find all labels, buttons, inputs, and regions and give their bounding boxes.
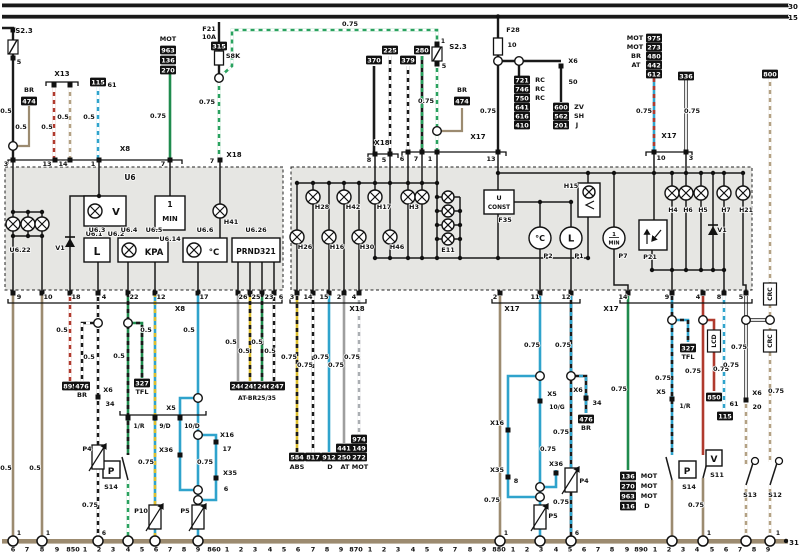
label: 14	[58, 160, 68, 168]
label: 0.5	[83, 113, 95, 121]
dot	[784, 539, 788, 543]
label: X17	[470, 133, 485, 141]
label: X36	[549, 460, 564, 468]
dot	[11, 210, 15, 214]
track-number: 7	[311, 546, 316, 554]
label: 9	[665, 293, 670, 301]
label: ZV	[574, 103, 584, 111]
dot	[311, 181, 315, 185]
pin-icon	[744, 291, 749, 296]
label: X8	[120, 145, 130, 153]
wire	[770, 463, 777, 485]
label: U6.3	[89, 226, 106, 234]
dot	[406, 256, 410, 260]
ground-junction-icon	[765, 536, 775, 546]
pin-icon	[670, 291, 675, 296]
label: 0.75	[553, 428, 570, 436]
wire	[441, 108, 462, 131]
wire	[180, 398, 198, 490]
wire-tag-number: 136	[621, 472, 635, 480]
label: H3	[409, 203, 419, 211]
label: 0.75	[328, 361, 345, 369]
label: 61	[107, 81, 117, 89]
track-number: 7	[25, 546, 30, 554]
wire-tag-number: 562	[554, 112, 568, 120]
label: 26	[238, 293, 248, 301]
label: H17	[377, 203, 392, 211]
label: 11	[530, 293, 540, 301]
track-number: 1	[225, 546, 230, 554]
label: P	[684, 467, 691, 477]
track-number: 8	[610, 546, 615, 554]
track-number: 1	[83, 546, 88, 554]
label: 9/D	[159, 423, 170, 430]
label: 10A	[202, 33, 216, 41]
label: MOT	[160, 35, 177, 43]
ground-junction-icon	[37, 536, 47, 546]
ground-junction-icon	[123, 536, 133, 546]
label: 0.5	[57, 113, 69, 121]
label: 10/D	[184, 423, 200, 430]
dot	[458, 223, 462, 227]
pin-icon	[178, 416, 183, 421]
label: H16	[330, 243, 345, 251]
label: 7	[161, 160, 166, 168]
wire-tag-number: 149	[352, 444, 366, 452]
label: TFL	[681, 353, 694, 361]
junction-icon	[668, 316, 677, 325]
wire-tag-number: 721	[515, 76, 529, 84]
label: H30	[360, 243, 375, 251]
track-number: 4	[411, 546, 416, 554]
label: U6	[124, 173, 135, 182]
wire	[122, 457, 128, 480]
dot	[327, 181, 331, 185]
wire-stripe	[222, 30, 437, 75]
track-number: 1	[653, 546, 658, 554]
pin-icon	[435, 150, 440, 155]
label: H7	[721, 207, 730, 214]
wire-tag-number: 476	[579, 415, 593, 423]
junction-icon	[215, 74, 224, 83]
connector-bracket	[120, 411, 206, 415]
wire-tag-number: 270	[161, 66, 175, 74]
svg-text:MIN: MIN	[608, 241, 619, 247]
track-number: 860	[207, 546, 221, 554]
wire-tag-number: 250	[337, 453, 351, 461]
track-number: 7	[168, 546, 173, 554]
wire-tag-number: 974	[352, 435, 366, 443]
label: P1	[574, 252, 584, 260]
track-number: 7	[596, 546, 601, 554]
label: X17	[504, 305, 519, 313]
label: 8	[514, 477, 519, 485]
wire-tag-number: 612	[647, 70, 661, 78]
label: 1	[441, 38, 445, 45]
label: 0.75	[344, 353, 361, 361]
dot	[388, 256, 392, 260]
label: U6.5	[146, 226, 163, 234]
track-number: 7	[738, 546, 743, 554]
ground-junction-icon	[566, 536, 576, 546]
label: 6	[400, 155, 405, 163]
rail	[2, 15, 790, 19]
label: V1	[55, 244, 65, 252]
label: 0.75	[655, 374, 672, 382]
label: 50	[568, 78, 578, 86]
pin-icon	[218, 158, 223, 163]
dot	[40, 210, 44, 214]
wire-tag-number: 442	[647, 61, 661, 69]
lcd-label: LCD	[711, 334, 718, 347]
wire-tag-number: 584	[290, 453, 304, 461]
pin-icon	[96, 395, 101, 400]
dot	[458, 256, 462, 260]
label: P	[108, 467, 115, 477]
label: 0.5	[41, 123, 53, 131]
dot	[97, 194, 101, 198]
label: BR	[24, 86, 34, 94]
crc-label: CRC	[767, 334, 774, 348]
label: F21	[202, 25, 216, 33]
label: 0.5	[264, 347, 276, 355]
rail	[2, 4, 790, 8]
dot	[722, 268, 726, 272]
dot	[295, 181, 299, 185]
track-number: 6	[439, 546, 444, 554]
label: 8	[717, 293, 722, 301]
label: V	[711, 455, 718, 465]
label: 1	[91, 160, 96, 168]
label: X16	[490, 419, 505, 427]
label: U	[496, 194, 501, 202]
label: KPA	[145, 248, 164, 258]
label: H41	[224, 218, 239, 226]
wire-tag-number: 800	[763, 70, 777, 78]
track-number: 1	[511, 546, 516, 554]
track-number: 3	[111, 546, 116, 554]
junction-icon	[494, 57, 503, 66]
label: S2.3	[15, 27, 33, 35]
wire-tag-number: 370	[367, 56, 381, 64]
pin-icon	[153, 416, 158, 421]
junction-icon	[194, 431, 203, 440]
dot	[435, 256, 439, 260]
label: 4	[352, 293, 357, 301]
junction-icon	[433, 127, 442, 136]
label: 0.75	[138, 458, 155, 466]
label: P7	[618, 252, 627, 260]
pin-icon	[97, 158, 102, 163]
label: X5	[166, 404, 176, 412]
label: BR	[457, 86, 467, 94]
label: RC	[535, 85, 545, 93]
junction-icon	[699, 316, 708, 325]
label: V	[112, 207, 120, 218]
label: 0.75	[197, 458, 214, 466]
wire-tag-number: 476	[75, 382, 89, 390]
track-number: 1	[368, 546, 373, 554]
label: 61	[729, 400, 739, 408]
label: 1	[46, 530, 50, 537]
label: 14	[618, 293, 628, 301]
track-number: 880	[492, 546, 506, 554]
dot	[652, 171, 656, 175]
label: X13	[54, 70, 69, 78]
label: 0.75	[684, 107, 701, 115]
track-number: 9	[55, 546, 60, 554]
dot	[435, 195, 439, 199]
label: MOT	[627, 43, 644, 51]
dot	[458, 237, 462, 241]
pin-icon	[538, 399, 543, 404]
label: E11	[441, 246, 455, 254]
label: U6.22	[9, 246, 30, 254]
label: 6	[102, 530, 106, 537]
label: 6	[224, 485, 229, 493]
label: 1	[17, 530, 21, 537]
label: MOT	[352, 463, 369, 471]
track-number: 850	[66, 546, 80, 554]
track-number: 2	[97, 546, 102, 554]
track-number: 4	[126, 546, 131, 554]
label: 0.75	[480, 107, 497, 115]
label: 0.5	[0, 107, 12, 115]
junction-icon	[194, 486, 203, 495]
dot	[11, 234, 15, 238]
track-number: 6	[11, 546, 16, 554]
label: 0.5	[183, 326, 195, 334]
label: S11	[710, 471, 724, 479]
label: S13	[743, 491, 757, 499]
pin-icon	[214, 440, 219, 445]
label: X8	[175, 305, 185, 313]
dot	[699, 171, 703, 175]
ground-junction-icon	[741, 536, 751, 546]
label: P4	[82, 445, 92, 453]
label: MOT	[641, 472, 658, 480]
label: S8K	[226, 52, 241, 60]
label: 0.75	[82, 501, 99, 509]
label: 22	[129, 293, 138, 301]
pin-icon	[373, 152, 378, 157]
wire-tag-number: 115	[91, 78, 105, 86]
label: X16	[220, 431, 235, 439]
wire-stripe	[571, 376, 586, 413]
label: 13	[486, 155, 495, 163]
label: 14	[303, 293, 313, 301]
label: MOT	[641, 492, 658, 500]
track-number: 5	[140, 546, 145, 554]
fuse-icon	[215, 51, 224, 65]
label: 0.75	[313, 353, 330, 361]
junction-icon	[194, 496, 203, 505]
label: 0.75	[723, 361, 740, 369]
pin-icon	[388, 152, 393, 157]
wire-tag-number: 136	[161, 56, 175, 64]
dot	[670, 268, 674, 272]
label: CONST	[488, 205, 510, 211]
pin-icon	[168, 158, 173, 163]
pin-icon	[420, 150, 425, 155]
track-number: 6	[582, 546, 587, 554]
ground-junction-icon	[8, 536, 18, 546]
ground-junction-icon	[667, 536, 677, 546]
label: 0.75	[685, 367, 702, 375]
fuse-icon	[494, 38, 503, 55]
dot	[496, 256, 500, 260]
wire-tag-number: 975	[647, 34, 661, 42]
label: 3	[290, 293, 295, 301]
label: MOT	[641, 482, 658, 490]
pin-icon	[406, 150, 411, 155]
track-number: 6	[154, 546, 159, 554]
wire	[82, 323, 98, 381]
label: 17	[199, 293, 208, 301]
dot	[26, 234, 30, 238]
junction-icon	[536, 372, 545, 381]
label: 5	[382, 156, 387, 164]
label: 0.75	[342, 20, 359, 28]
track-number: 4	[695, 546, 700, 554]
wire-tag-number: 379	[401, 56, 415, 64]
wire-tag-number: 201	[554, 121, 568, 129]
track-number: 8	[752, 546, 757, 554]
label: °C	[209, 248, 220, 258]
pin-icon	[342, 291, 347, 296]
label: PRND321	[236, 247, 275, 256]
label: H5	[698, 207, 707, 214]
dot	[684, 171, 688, 175]
dot	[741, 171, 745, 175]
label: 6	[279, 293, 284, 301]
label: 15	[319, 293, 329, 301]
label: V1	[717, 226, 727, 234]
dot	[569, 200, 573, 204]
label: 13	[42, 160, 51, 168]
switch-contact-icon	[752, 458, 759, 465]
junction-icon	[536, 483, 545, 492]
label: 3	[689, 154, 694, 162]
label: 2	[337, 293, 342, 301]
pin-icon	[96, 291, 101, 296]
dot	[711, 268, 715, 272]
pin-icon	[506, 428, 511, 433]
label: 1	[504, 530, 508, 537]
svg-text:°C: °C	[535, 234, 545, 243]
pin-icon	[506, 475, 511, 480]
wire-tag-number: 272	[352, 453, 366, 461]
track-number: 3	[539, 546, 544, 554]
connector-bracket	[620, 299, 752, 303]
label: 0.5	[0, 464, 12, 472]
dot	[373, 256, 377, 260]
track-number: 9	[625, 546, 630, 554]
pin-icon	[498, 291, 503, 296]
wire-tag-number: 963	[621, 492, 635, 500]
label: 0.75	[768, 387, 785, 395]
svg-text:L: L	[568, 234, 575, 245]
label: RC	[535, 76, 545, 84]
label: U6.26	[245, 226, 267, 234]
label: BR	[77, 391, 87, 399]
wire-tag-number: 474	[22, 97, 36, 105]
wire-tag-number: 912	[322, 453, 336, 461]
label: X35	[490, 466, 505, 474]
switch-contact-icon	[776, 458, 783, 465]
label: D	[644, 502, 650, 510]
label: P21	[643, 253, 657, 261]
track-number: 5	[568, 546, 573, 554]
wire-tag-number: 410	[515, 121, 529, 129]
wire-tag-number: 641	[515, 103, 529, 111]
track-number: 8	[182, 546, 187, 554]
dot	[420, 181, 424, 185]
label: 0.5	[225, 338, 237, 346]
wire-tag-number: 327	[681, 344, 695, 352]
label: 0.5	[238, 347, 250, 355]
label: 10/G	[549, 404, 565, 411]
label: 0.75	[297, 361, 314, 369]
junction-icon	[536, 493, 545, 502]
dot	[342, 181, 346, 185]
label: X6	[103, 386, 113, 394]
dot	[435, 209, 439, 213]
dot	[420, 256, 424, 260]
junction-icon	[766, 316, 775, 325]
label: 20	[752, 403, 762, 411]
label: 34	[592, 399, 602, 407]
wire-tag-number: 850	[707, 393, 721, 401]
label: 4	[102, 293, 107, 301]
label: 12	[156, 293, 165, 301]
label: H46	[390, 243, 405, 251]
track-number: 2	[382, 546, 387, 554]
wire-tag-number: 817	[306, 453, 320, 461]
label: 0.75	[150, 112, 167, 120]
pin-icon	[554, 471, 559, 476]
label: X18	[374, 139, 389, 147]
track-number: 5	[710, 546, 715, 554]
pin-icon	[52, 83, 57, 88]
ground-junction-icon	[193, 536, 203, 546]
label: 5	[739, 293, 744, 301]
label: H6	[683, 207, 692, 214]
label: MIN	[162, 215, 178, 223]
label: 1/R	[680, 403, 691, 410]
label: 3	[4, 160, 9, 168]
track-number: 3	[681, 546, 686, 554]
dot	[496, 171, 500, 175]
label: 0.75	[731, 343, 748, 351]
track-number: 9	[766, 546, 771, 554]
track-number: 890	[634, 546, 648, 554]
label: AT-BR25/35	[238, 395, 276, 402]
junction-icon	[9, 142, 18, 151]
pin-icon	[295, 291, 300, 296]
pin-icon	[53, 158, 58, 163]
label: X5	[656, 388, 666, 396]
pin-icon	[701, 291, 706, 296]
pin-icon	[11, 291, 16, 296]
wire-tag-number: 746	[515, 85, 529, 93]
label: P10	[134, 507, 148, 515]
dot	[435, 237, 439, 241]
connector-bracket	[46, 82, 78, 86]
dot	[435, 223, 439, 227]
wire-tag-number: 616	[515, 112, 529, 120]
label: BR	[581, 424, 591, 432]
